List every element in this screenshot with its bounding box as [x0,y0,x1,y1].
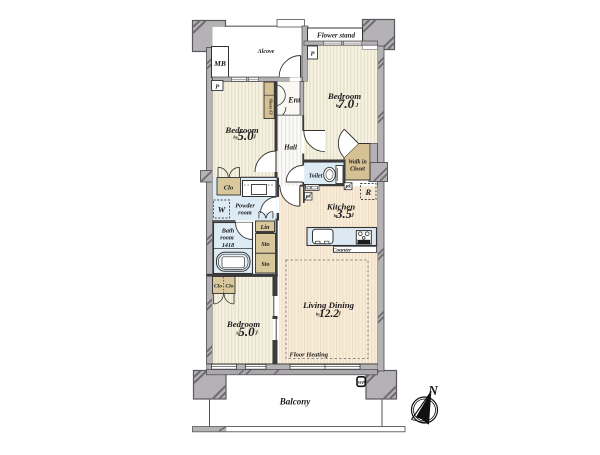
svg-text:7.0: 7.0 [338,96,355,111]
svg-text:room: room [238,210,252,217]
svg-text:12.2: 12.2 [319,308,339,320]
svg-text:Lin: Lin [259,224,270,231]
svg-text:WP: WP [358,380,365,385]
svg-text:Floor Heating: Floor Heating [290,352,329,359]
svg-text:N: N [427,383,439,398]
svg-text:PS: PS [345,184,351,189]
svg-text:Alcove: Alcove [257,49,275,55]
svg-text:Shoes Cl: Shoes Cl [269,99,274,116]
svg-text:Closet: Closet [350,167,365,173]
svg-text:Clo: Clo [224,185,234,192]
svg-text:Sto: Sto [261,241,269,248]
svg-text:Hall: Hall [283,143,297,151]
svg-text:PS: PS [306,194,312,199]
svg-text:Balcony: Balcony [279,397,312,407]
svg-text:room: room [220,235,234,242]
svg-text:Walk in: Walk in [348,160,366,166]
svg-text:5.0: 5.0 [238,324,255,339]
svg-text:Ent: Ent [287,95,301,104]
svg-text:3.5: 3.5 [335,207,352,221]
svg-text:1418: 1418 [222,242,234,249]
svg-text:5.0: 5.0 [237,128,254,143]
svg-text:Clo: Clo [214,284,222,290]
svg-text:Clo: Clo [225,284,233,290]
svg-text:Toilet: Toilet [309,173,323,179]
svg-text:Sto: Sto [261,261,269,268]
svg-text:R: R [364,187,371,197]
svg-text:Flower stand: Flower stand [317,32,355,40]
svg-text:Bath: Bath [221,228,235,235]
svg-text:Counter: Counter [333,248,353,254]
svg-text:MB: MB [213,59,226,68]
svg-text:Powder: Powder [235,203,255,210]
